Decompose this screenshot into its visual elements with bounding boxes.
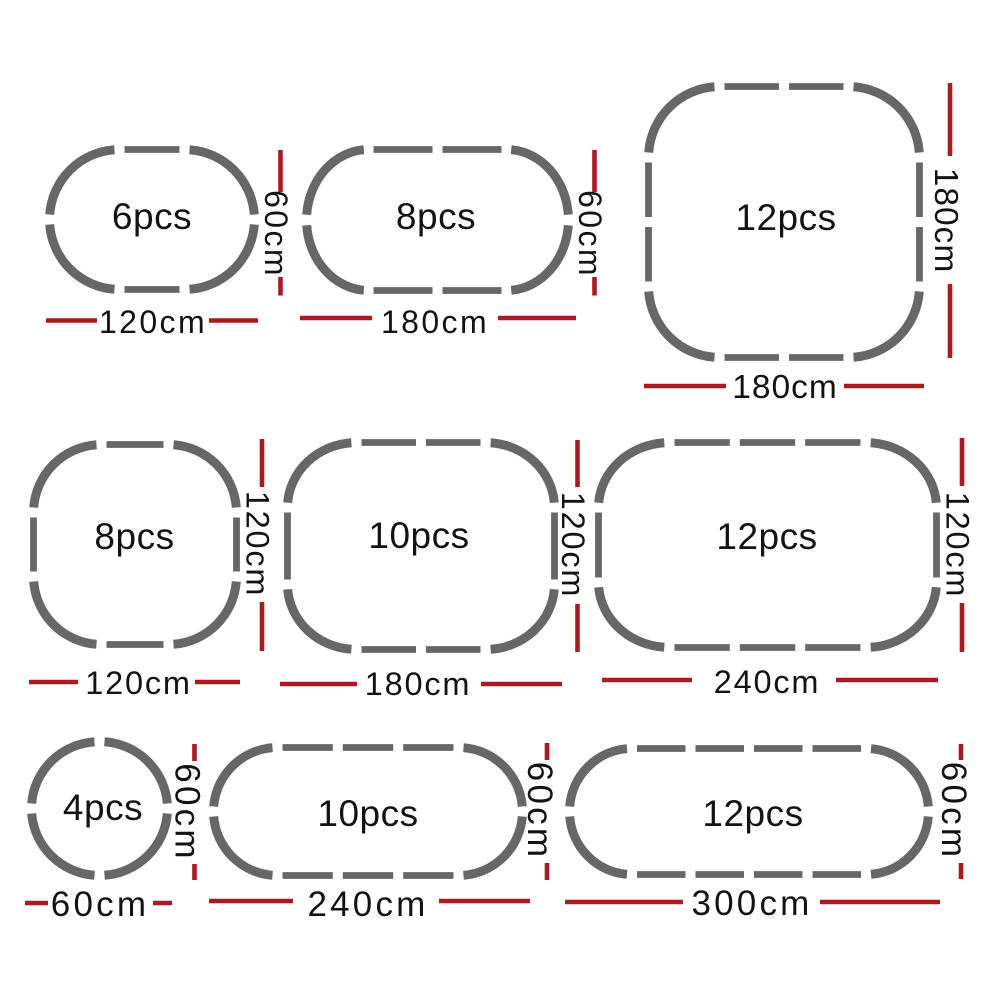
svg-text:60cm: 60cm — [934, 762, 973, 860]
svg-text:12pcs: 12pcs — [702, 793, 803, 834]
svg-text:120cm: 120cm — [555, 492, 591, 599]
svg-text:180cm: 180cm — [732, 369, 838, 406]
svg-text:10pcs: 10pcs — [368, 515, 469, 556]
svg-text:6pcs: 6pcs — [112, 196, 192, 237]
svg-text:240cm: 240cm — [307, 885, 428, 924]
svg-text:12pcs: 12pcs — [716, 516, 817, 557]
svg-text:120cm: 120cm — [99, 304, 207, 340]
svg-text:120cm: 120cm — [939, 492, 975, 599]
svg-text:60cm: 60cm — [572, 190, 608, 278]
svg-text:180cm: 180cm — [927, 168, 964, 274]
svg-text:60cm: 60cm — [520, 762, 559, 860]
svg-text:180cm: 180cm — [381, 304, 489, 340]
svg-text:60cm: 60cm — [51, 885, 149, 924]
svg-text:8pcs: 8pcs — [94, 516, 174, 557]
svg-text:120cm: 120cm — [85, 665, 192, 701]
svg-text:120cm: 120cm — [239, 491, 275, 598]
svg-text:4pcs: 4pcs — [63, 787, 143, 828]
svg-text:300cm: 300cm — [691, 884, 812, 923]
svg-text:180cm: 180cm — [365, 666, 472, 702]
svg-text:240cm: 240cm — [714, 664, 821, 700]
svg-text:60cm: 60cm — [168, 763, 207, 861]
svg-text:8pcs: 8pcs — [396, 196, 476, 237]
svg-text:60cm: 60cm — [258, 190, 294, 278]
svg-text:10pcs: 10pcs — [317, 793, 418, 834]
svg-text:12pcs: 12pcs — [735, 197, 836, 238]
